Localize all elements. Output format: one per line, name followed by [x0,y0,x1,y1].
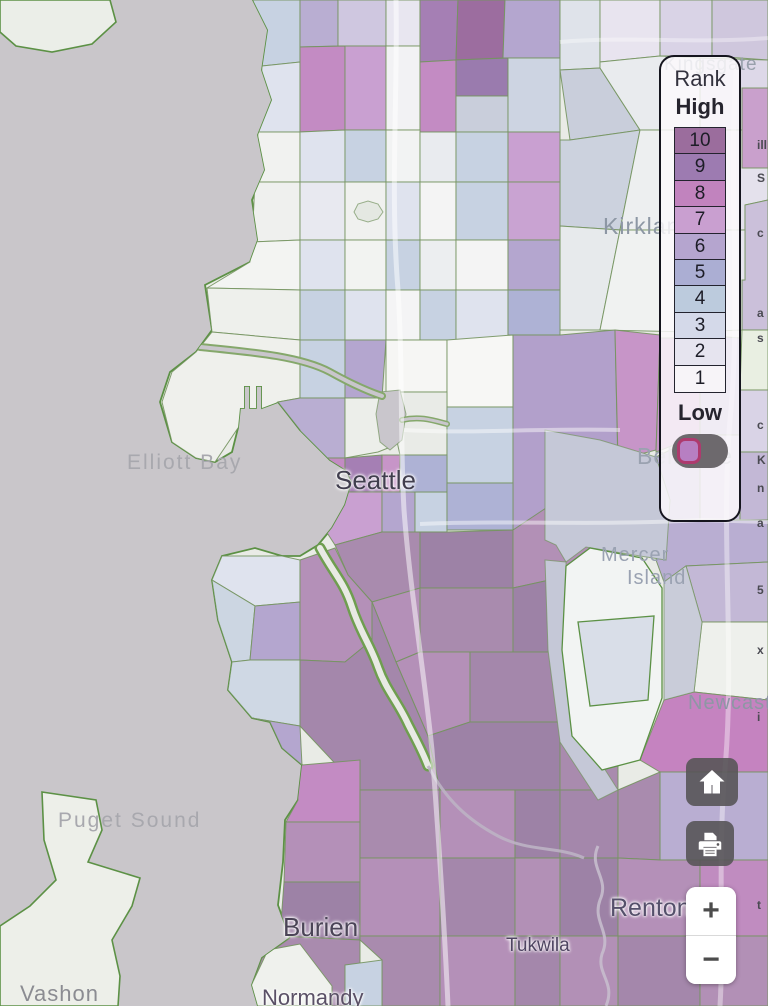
census-tract [600,0,660,62]
census-tract [740,452,768,520]
census-tract [508,132,560,182]
census-tract [252,182,300,242]
printer-icon [695,829,725,859]
legend-rank-scale: 10987654321 [674,127,726,393]
census-tract [415,492,447,532]
census-tract [447,407,513,483]
census-tract [284,822,360,882]
census-tract [300,182,345,240]
census-tract [420,530,513,588]
census-tract [250,602,300,660]
census-tract [508,290,560,335]
census-tract [300,290,345,340]
census-tract [300,0,338,47]
census-tract [345,130,386,182]
census-tract [742,88,768,168]
census-tract [280,882,360,940]
census-tract [440,936,515,1006]
census-tract [428,722,560,790]
legend-low-label: Low [678,400,722,426]
census-tract [345,240,386,290]
census-tract [420,182,456,240]
census-tract [560,790,618,858]
legend-toggle-switch[interactable] [672,434,728,468]
census-tract [386,340,447,392]
census-tract [508,58,560,132]
legend-rank-swatch: 3 [674,312,726,340]
census-tract [386,182,420,240]
census-tract [300,46,345,132]
census-tract [345,46,386,130]
print-button[interactable] [686,821,734,866]
legend-rank-swatch: 1 [674,365,726,393]
island-tract [578,616,654,706]
zoom-in-button[interactable]: + [686,887,736,935]
census-tract [515,858,560,936]
census-tract [515,936,560,1006]
census-tract [742,200,768,330]
census-tract [345,960,382,1006]
census-tract [386,46,420,130]
legend-rank-swatch: 5 [674,259,726,287]
legend-rank-swatch: 2 [674,338,726,366]
census-tract [447,335,513,407]
zoom-control: + − [686,887,736,984]
census-tract [508,182,560,240]
census-tract [207,288,300,340]
census-tract [420,60,456,132]
census-tract [300,240,345,290]
census-tract [456,58,508,96]
census-tract [345,290,386,340]
legend-toggle-knob [677,438,701,464]
map-application: KingsgateKirklandElliott BaySeattleBelle… [0,0,768,1006]
legend-rank-swatch: 8 [674,180,726,208]
census-tract [338,0,386,46]
home-icon [696,766,728,798]
census-tract [660,0,712,56]
census-tract [740,390,768,452]
census-tract [740,330,768,390]
census-tract [400,455,447,492]
census-tract [420,290,456,340]
census-tract [382,455,400,492]
legend-rank-swatch: 6 [674,233,726,261]
legend-high-label: High [676,94,725,120]
census-tract [420,132,456,182]
census-tract [420,240,456,290]
census-tract [456,132,508,182]
census-tract [456,96,508,132]
census-tract [386,0,420,46]
census-tract [615,330,660,460]
legend-rank-swatch: 7 [674,206,726,234]
legend-title: Rank [674,66,725,92]
census-tract [440,858,515,936]
legend-panel: Rank High 10987654321 Low [659,55,741,522]
census-tract [456,240,508,290]
legend-rank-swatch: 10 [674,127,726,155]
census-tract [386,130,420,182]
home-button[interactable] [686,758,738,806]
census-tract [503,0,560,58]
census-tract [560,0,600,70]
census-tract [560,858,618,936]
census-tract [382,492,415,532]
census-tract [456,290,508,340]
highway [404,430,620,432]
census-tract [420,588,513,652]
census-tract [712,0,768,60]
highway [560,38,768,42]
census-tract [420,0,458,62]
lake [354,201,383,222]
census-tract [508,240,560,290]
census-tract [386,240,420,290]
zoom-out-button[interactable]: − [686,936,736,984]
census-tract [300,130,345,182]
census-tract [386,290,420,340]
census-tract [470,652,560,722]
census-tract [456,182,508,240]
legend-rank-swatch: 9 [674,153,726,181]
legend-rank-swatch: 4 [674,285,726,313]
census-tract [360,790,440,858]
census-tract [360,858,440,936]
census-tract [456,0,505,60]
map-canvas[interactable] [0,0,768,1006]
